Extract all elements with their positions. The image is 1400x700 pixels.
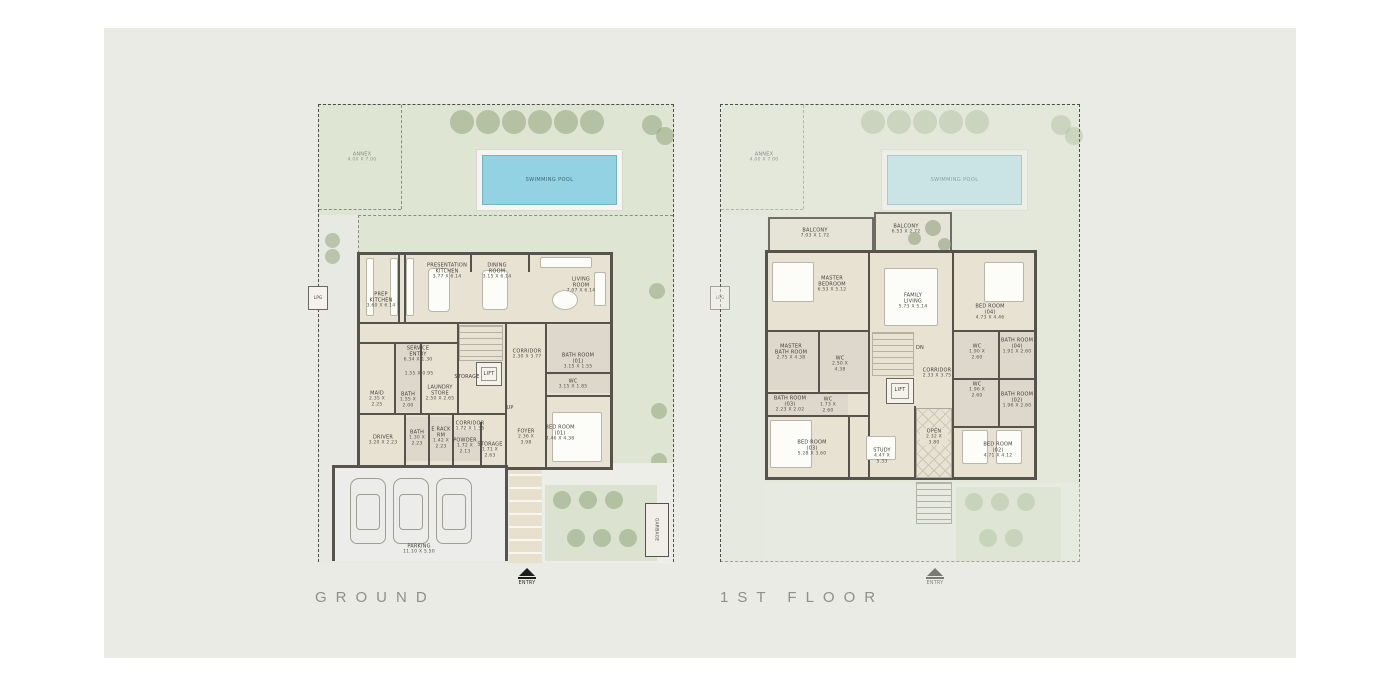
room-label-bath-room-04: BATH ROOM (04)1.91 X 2.60 [1000,337,1034,355]
annex-boundary-v [803,105,804,209]
partition-wall [765,392,870,394]
first-side-path [721,215,766,563]
room-label-wc-03: WC1.73 X 2.60 [815,397,841,414]
room-label-bath-room-03: BATH ROOM (03)2.23 X 2.02 [772,395,808,413]
entry-label: ENTRY [518,581,535,586]
tree-icon [913,110,937,134]
tree-icon [651,403,667,419]
tree-icon [605,491,623,509]
tree-icon [325,249,340,264]
tree-icon [502,110,526,134]
tree-icon [656,127,674,145]
exterior-stair [916,482,952,524]
room-label-master-bedroom: MASTER BEDROOM6.53 X 5.12 [814,275,850,293]
first-floor-title: 1ST FLOOR [720,589,884,606]
sheet-background [104,28,1296,658]
tree-icon [476,110,500,134]
room-label-dining-room: DINING ROOM3.15 X 6.14 [480,262,514,280]
room-label-bath-room-01: BATH ROOM (01)3.15 X 1.55 [558,352,598,370]
room-label-study: STUDY4.47 X 5.33 [868,448,896,465]
partition-wall [952,250,954,480]
room-label-driver: DRIVER3.20 X 2.23 [368,434,398,446]
room-label-balcony-right: BALCONY6.53 X 2.72 [889,223,923,235]
tree-icon [979,529,997,547]
partition-wall [545,395,613,397]
room-label-bath: BATH1.55 X 2.00 [398,392,418,409]
partition-wall [398,252,400,322]
lpg-box: LPG [308,286,328,310]
swimming-pool: SWIMMING POOL [887,155,1022,205]
tree-icon [887,110,911,134]
room-label-master-bath: MASTER BATH ROOM2.75 X 4.38 [774,343,808,361]
room-label-prep-kitchen: PREP KITCHEN3.60 X 6.14 [365,291,397,309]
room-label-service-entry: SERVICE ENTRY6.34 X 1.30 [398,345,438,363]
room-label-presentation-kitchen: PRESENTATION KITCHEN3.77 X 6.14 [425,262,469,280]
tree-icon [554,110,578,134]
kitchen-counter [406,258,414,316]
lpg-label: LPG [716,296,725,301]
tree-icon [649,283,665,299]
dim-label-corridor-small: 1.55 X 0.95 [402,371,436,377]
annex-boundary-v [401,105,402,209]
lpg-label: LPG [314,296,323,301]
room-label-lift: LIFT [479,371,499,377]
annex-boundary-h [319,209,401,210]
entry-base-line [926,577,944,579]
tree-icon [1017,493,1035,511]
annex-label: ANNEX4.00 X 7.00 [750,151,779,163]
tree-icon [553,491,571,509]
tree-icon [965,493,983,511]
partition-wall [505,322,507,470]
room-label-corridor: CORRIDOR2.30 X 3.77 [510,348,544,360]
room-label-wc: WC3.15 X 1.85 [558,378,588,390]
room-label-balcony-left: BALCONY7.03 X 1.72 [798,227,832,239]
room-label-corridor: CORRIDOR2.33 X 3.75 [921,367,953,379]
room-label-living-room: LIVING ROOM7.07 X 6.14 [564,276,598,294]
partition-wall [818,330,820,392]
partition-wall [394,342,396,415]
room-label-wc-04: WC1.90 X 2.60 [964,344,990,361]
entry-marker: ENTRY [518,568,536,586]
room-label-e-rack: E RACK RM1.42 X 2.23 [429,427,453,450]
room-label-laundry-store: LAUNDRY STORE2.50 X 2.65 [425,384,455,402]
annex-boundary-h [721,209,803,210]
partition-wall [952,378,1037,380]
room-label-corridor-2: CORRIDOR1.72 X 1.35 [455,420,485,432]
room-label-lift: LIFT [890,387,910,393]
partition-wall [357,413,507,415]
tree-icon [580,110,604,134]
partition-wall [357,322,613,324]
room-label-bath-2: BATH1.30 X 2.23 [407,430,427,447]
entry-marker: ENTRY [926,568,944,586]
car-icon [350,478,386,544]
garbage-label: GARBAGE [655,518,660,541]
bed [984,262,1024,302]
setback-line-h [358,215,673,216]
partition-wall [952,330,1037,332]
tree-icon [579,491,597,509]
tree-icon [1005,529,1023,547]
tree-icon [1065,127,1083,145]
car-roof [442,494,466,530]
swimming-pool-label: SWIMMING POOL [931,177,979,183]
room-label-wc-master: WC2.50 X 4.38 [827,356,853,373]
car-icon [393,478,429,544]
room-label-storage-2: STORAGE1.71 X 2.63 [476,442,504,459]
partition-wall [952,426,1037,428]
entry-walkway [509,463,542,563]
room-label-wc-02: WC1.96 X 2.60 [964,382,990,399]
tree-icon [325,233,340,248]
swimming-pool: SWIMMING POOL [482,155,617,205]
entry-label: ENTRY [926,581,943,586]
room-label-bed-room-04: BED ROOM (04)4.73 X 4.46 [970,303,1010,321]
annex-label: ANNEX 4.00 X 7.00 [348,151,377,163]
partition-wall [404,413,406,465]
tree-icon [450,110,474,134]
room-label-open: OPEN2.32 X 3.80 [920,429,948,446]
room-label-family-living: FAMILY LIVING5.73 X 5.14 [898,292,928,310]
entry-arrow-icon [519,568,535,576]
room-label-bath-room-02: BATH ROOM (02)1.96 X 2.60 [1000,391,1034,409]
entry-arrow-icon [927,568,943,576]
room-label-dn: DN [912,345,928,351]
entry-base-line [518,577,536,579]
room-label-foyer: FOYER2.36 X 3.98 [512,429,540,446]
room-label-maid: MAID2.35 X 2.25 [365,391,389,408]
room-label-parking: PARKING11.10 X 5.50 [399,543,439,555]
partition-wall [765,415,870,417]
sofa [540,257,592,268]
garbage-room: GARBAGE [645,503,669,557]
partition-wall [848,415,850,480]
partition-wall [357,342,457,344]
tree-icon [528,110,552,134]
stairs [872,332,914,376]
car-roof [399,494,423,530]
lpg-box: LPG [710,286,730,310]
room-label-storage: STORAGE [454,374,480,380]
tree-icon [991,493,1009,511]
room-label-bed-room-02: BED ROOM (02)4.71 X 4.12 [978,441,1018,459]
plant-icon [925,220,941,236]
partition-wall [528,252,530,272]
ground-floor-title: GROUND [315,589,436,606]
car-icon [436,478,472,544]
tree-icon [965,110,989,134]
tree-icon [861,110,885,134]
swimming-pool-label: SWIMMING POOL [526,177,574,183]
car-roof [356,494,380,530]
bed [772,262,814,302]
tree-icon [619,529,637,547]
stairs [459,325,503,361]
partition-wall [545,372,613,374]
room-label-bed-room-01: BED ROOM (01)4.46 X 4.38 [540,424,580,442]
room-label-powder: POWDER1.72 X 2.13 [451,438,479,455]
room-label-up: UP [502,405,518,411]
tree-icon [939,110,963,134]
floorplan-sheet: ANNEX 4.00 X 7.00 SWIMMING POOL [0,0,1400,700]
room-label-bed-room-03: BED ROOM (03)5.28 X 3.60 [792,439,832,457]
tree-icon [567,529,585,547]
partition-wall [470,252,472,272]
tree-icon [593,529,611,547]
